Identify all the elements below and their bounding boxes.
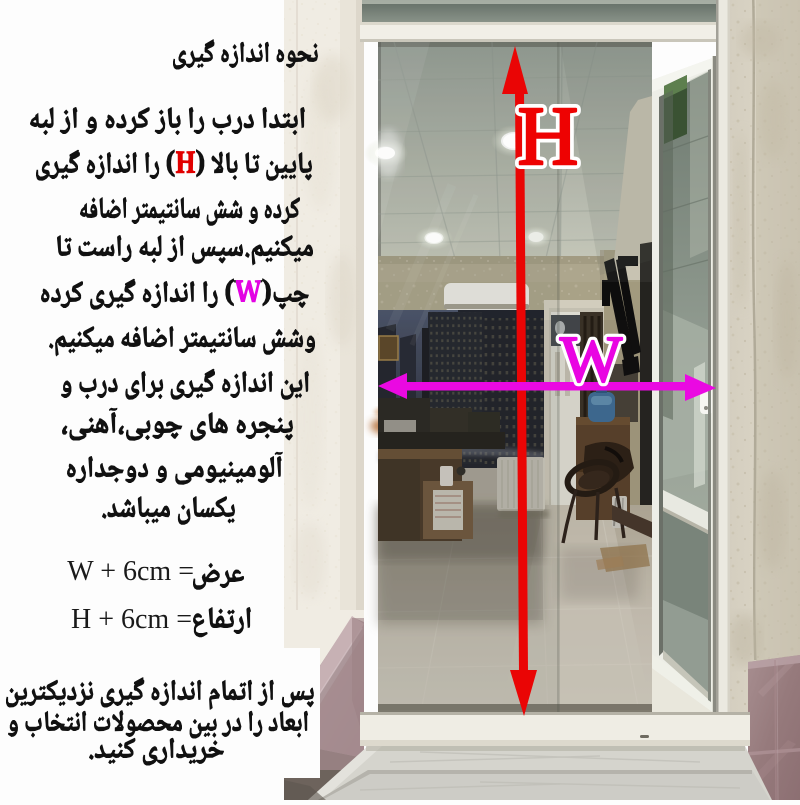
svg-text:W: W bbox=[560, 323, 623, 396]
svg-text:H: H bbox=[518, 90, 579, 183]
svg-text:W + 6cm =: W + 6cm = bbox=[67, 556, 194, 587]
svg-text:H + 6cm =: H + 6cm = bbox=[71, 604, 192, 635]
